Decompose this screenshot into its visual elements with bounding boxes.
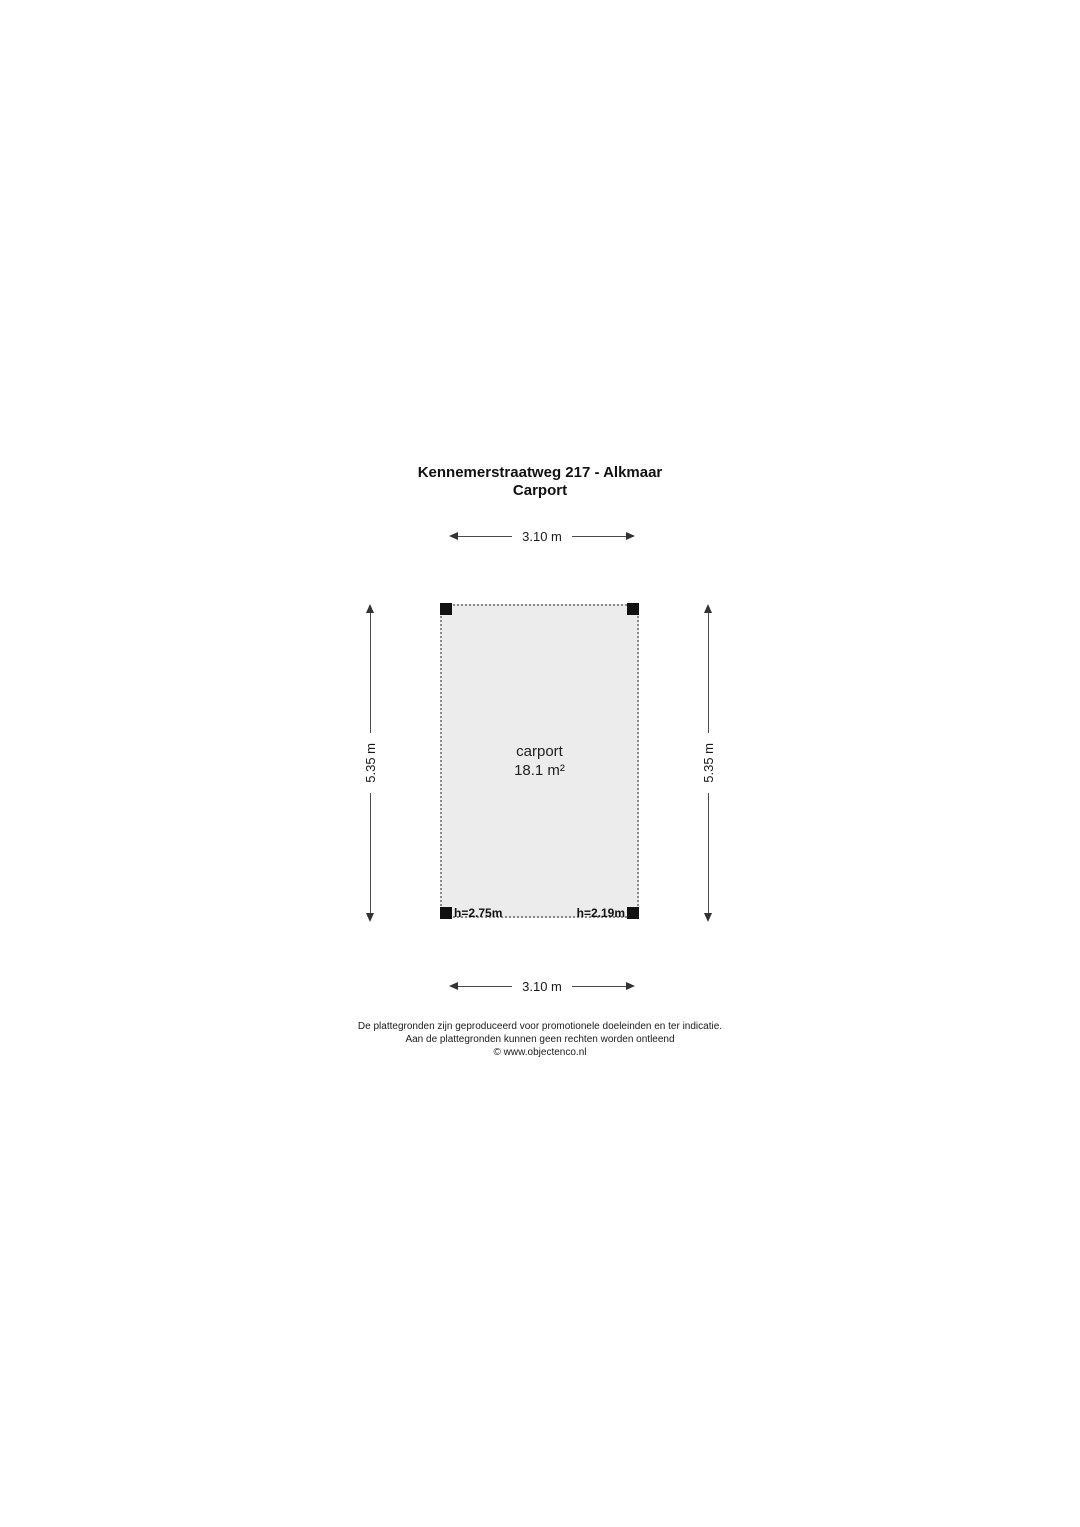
corner-post-bottom-right bbox=[627, 907, 639, 919]
disclaimer-line2: Aan de plattegronden kunnen geen rechten… bbox=[0, 1033, 1080, 1046]
corner-post-bottom-left bbox=[440, 907, 452, 919]
arrow-up-icon bbox=[704, 604, 712, 613]
plan-title: Kennemerstraatweg 217 - Alkmaar Carport bbox=[0, 464, 1080, 500]
room-label: carport 18.1 m² bbox=[442, 742, 637, 780]
disclaimer-copyright: © www.objectenco.nl bbox=[0, 1046, 1080, 1059]
dimension-left: 5.35 m bbox=[350, 604, 390, 922]
arrow-left-icon bbox=[449, 982, 458, 990]
arrow-up-icon bbox=[366, 604, 374, 613]
dimension-top-label: 3.10 m bbox=[512, 529, 572, 544]
corner-post-top-right bbox=[627, 603, 639, 615]
dimension-bottom-label: 3.10 m bbox=[512, 979, 572, 994]
arrow-right-icon bbox=[626, 532, 635, 540]
height-label-left: h=2.75m bbox=[454, 907, 502, 919]
dimension-line-segment bbox=[572, 536, 626, 537]
carport-room: carport 18.1 m² h=2.75m h=2.19m bbox=[440, 604, 639, 918]
height-label-right: h=2.19m bbox=[577, 907, 625, 919]
disclaimer-line1: De plattegronden zijn geproduceerd voor … bbox=[0, 1020, 1080, 1033]
dimension-line-segment bbox=[458, 536, 512, 537]
floorplan-page: Kennemerstraatweg 217 - Alkmaar Carport … bbox=[0, 0, 1080, 1527]
dimension-line-segment bbox=[370, 793, 371, 913]
dimension-line-segment bbox=[708, 793, 709, 913]
arrow-left-icon bbox=[449, 532, 458, 540]
arrow-right-icon bbox=[626, 982, 635, 990]
room-name: carport bbox=[442, 742, 637, 761]
disclaimer: De plattegronden zijn geproduceerd voor … bbox=[0, 1020, 1080, 1059]
dimension-bottom: 3.10 m bbox=[449, 980, 635, 992]
arrow-down-icon bbox=[704, 913, 712, 922]
dimension-top: 3.10 m bbox=[449, 530, 635, 542]
arrow-down-icon bbox=[366, 913, 374, 922]
corner-post-top-left bbox=[440, 603, 452, 615]
dimension-right-label: 5.35 m bbox=[701, 733, 716, 793]
plan-title-address: Kennemerstraatweg 217 - Alkmaar bbox=[0, 464, 1080, 482]
plan-title-floor: Carport bbox=[0, 482, 1080, 500]
dimension-line-segment bbox=[708, 613, 709, 733]
dimension-line-segment bbox=[458, 986, 512, 987]
dimension-line-segment bbox=[370, 613, 371, 733]
dimension-left-label: 5.35 m bbox=[363, 733, 378, 793]
dimension-line-segment bbox=[572, 986, 626, 987]
room-area: 18.1 m² bbox=[442, 761, 637, 780]
dimension-right: 5.35 m bbox=[688, 604, 728, 922]
